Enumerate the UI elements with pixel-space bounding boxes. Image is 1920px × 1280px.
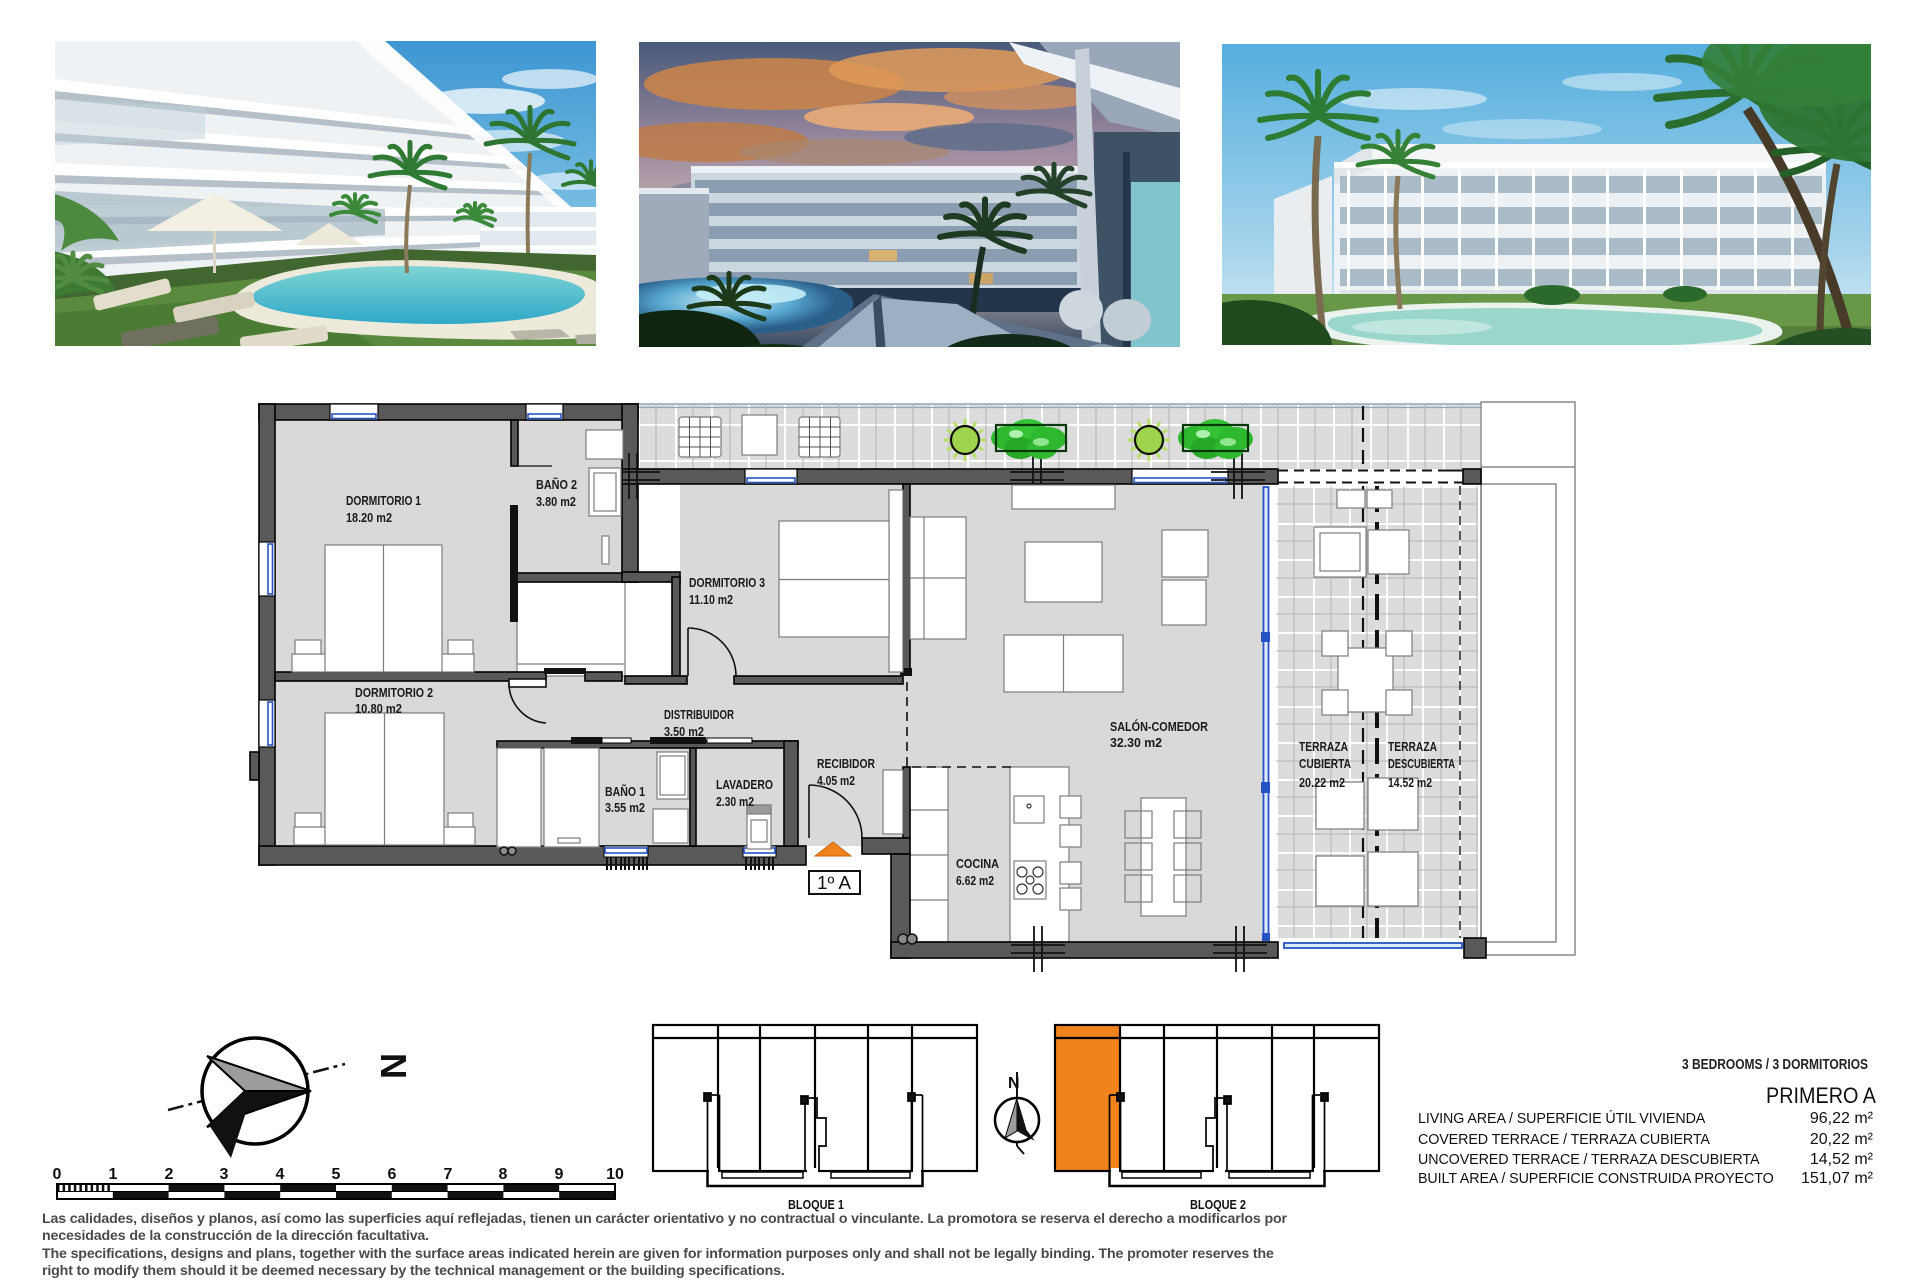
svg-text:N: N (373, 1053, 414, 1079)
svg-text:14.52 m2: 14.52 m2 (1388, 775, 1432, 790)
svg-text:N: N (1008, 1075, 1020, 1092)
svg-text:necesidades de la construcción: necesidades de la construcción de la dir… (42, 1228, 429, 1244)
svg-text:6.62 m2: 6.62 m2 (956, 873, 994, 888)
svg-text:8: 8 (499, 1166, 508, 1183)
svg-text:3.80 m2: 3.80 m2 (536, 494, 576, 509)
svg-text:4.05 m2: 4.05 m2 (817, 773, 855, 788)
svg-text:1º A: 1º A (817, 873, 851, 893)
svg-text:7: 7 (444, 1166, 453, 1183)
svg-text:3: 3 (220, 1166, 229, 1183)
svg-text:10: 10 (606, 1166, 624, 1183)
svg-text:UNCOVERED TERRACE / TERRAZA DE: UNCOVERED TERRACE / TERRAZA DESCUBIERTA (1418, 1152, 1760, 1168)
svg-text:DESCUBIERTA: DESCUBIERTA (1388, 756, 1455, 771)
svg-text:3.50 m2: 3.50 m2 (664, 724, 704, 739)
svg-text:COCINA: COCINA (956, 856, 1000, 871)
svg-text:PRIMERO A: PRIMERO A (1766, 1083, 1876, 1108)
svg-text:10.80 m2: 10.80 m2 (355, 701, 402, 716)
svg-text:20,22 m²: 20,22 m² (1810, 1131, 1874, 1148)
svg-text:TERRAZA: TERRAZA (1388, 739, 1437, 754)
svg-text:BUILT AREA / SUPERFICIE CONSTR: BUILT AREA / SUPERFICIE CONSTRUIDA PROYE… (1418, 1171, 1774, 1187)
svg-text:CUBIERTA: CUBIERTA (1299, 756, 1351, 771)
svg-text:151,07 m²: 151,07 m² (1801, 1170, 1874, 1187)
svg-text:32.30 m2: 32.30 m2 (1110, 735, 1162, 750)
svg-text:BAÑO 1: BAÑO 1 (605, 784, 645, 799)
svg-text:1: 1 (109, 1166, 118, 1183)
svg-text:LIVING AREA / SUPERFICIE ÚTIL: LIVING AREA / SUPERFICIE ÚTIL VIVIENDA (1418, 1110, 1706, 1127)
svg-text:DISTRIBUIDOR: DISTRIBUIDOR (664, 707, 734, 722)
svg-text:18.20 m2: 18.20 m2 (346, 510, 392, 525)
svg-text:6: 6 (388, 1166, 397, 1183)
svg-text:RECIBIDOR: RECIBIDOR (817, 756, 875, 771)
svg-text:96,22 m²: 96,22 m² (1810, 1110, 1874, 1127)
svg-text:3 BEDROOMS / 3 DORMITORIOS: 3 BEDROOMS / 3 DORMITORIOS (1682, 1057, 1868, 1073)
svg-text:DORMITORIO 2: DORMITORIO 2 (355, 685, 433, 700)
svg-text:5: 5 (332, 1166, 341, 1183)
svg-text:0: 0 (53, 1166, 62, 1183)
svg-text:4: 4 (276, 1166, 285, 1183)
svg-text:COVERED TERRACE / TERRAZA CUBI: COVERED TERRACE / TERRAZA CUBIERTA (1418, 1132, 1710, 1148)
svg-text:DORMITORIO 1: DORMITORIO 1 (346, 493, 421, 508)
svg-text:14,52 m²: 14,52 m² (1810, 1151, 1874, 1168)
svg-text:The specifications, designs an: The specifications, designs and plans, t… (42, 1246, 1274, 1262)
svg-text:TERRAZA: TERRAZA (1299, 739, 1348, 754)
svg-text:right to modify them should it: right to modify them should it be deemed… (42, 1263, 785, 1279)
svg-text:SALÓN-COMEDOR: SALÓN-COMEDOR (1110, 719, 1209, 734)
svg-text:Las calidades, diseños y plano: Las calidades, diseños y planos, así com… (42, 1211, 1287, 1227)
svg-text:3.55 m2: 3.55 m2 (605, 800, 645, 815)
svg-text:20.22 m2: 20.22 m2 (1299, 775, 1345, 790)
svg-text:DORMITORIO 3: DORMITORIO 3 (689, 575, 765, 590)
svg-text:2.30 m2: 2.30 m2 (716, 794, 754, 809)
svg-text:BLOQUE 2: BLOQUE 2 (1190, 1197, 1246, 1212)
svg-text:BLOQUE 1: BLOQUE 1 (788, 1197, 844, 1212)
svg-text:2: 2 (165, 1166, 174, 1183)
svg-text:9: 9 (555, 1166, 564, 1183)
svg-text:11.10 m2: 11.10 m2 (689, 592, 733, 607)
svg-text:LAVADERO: LAVADERO (716, 777, 773, 792)
svg-text:BAÑO 2: BAÑO 2 (536, 477, 577, 492)
